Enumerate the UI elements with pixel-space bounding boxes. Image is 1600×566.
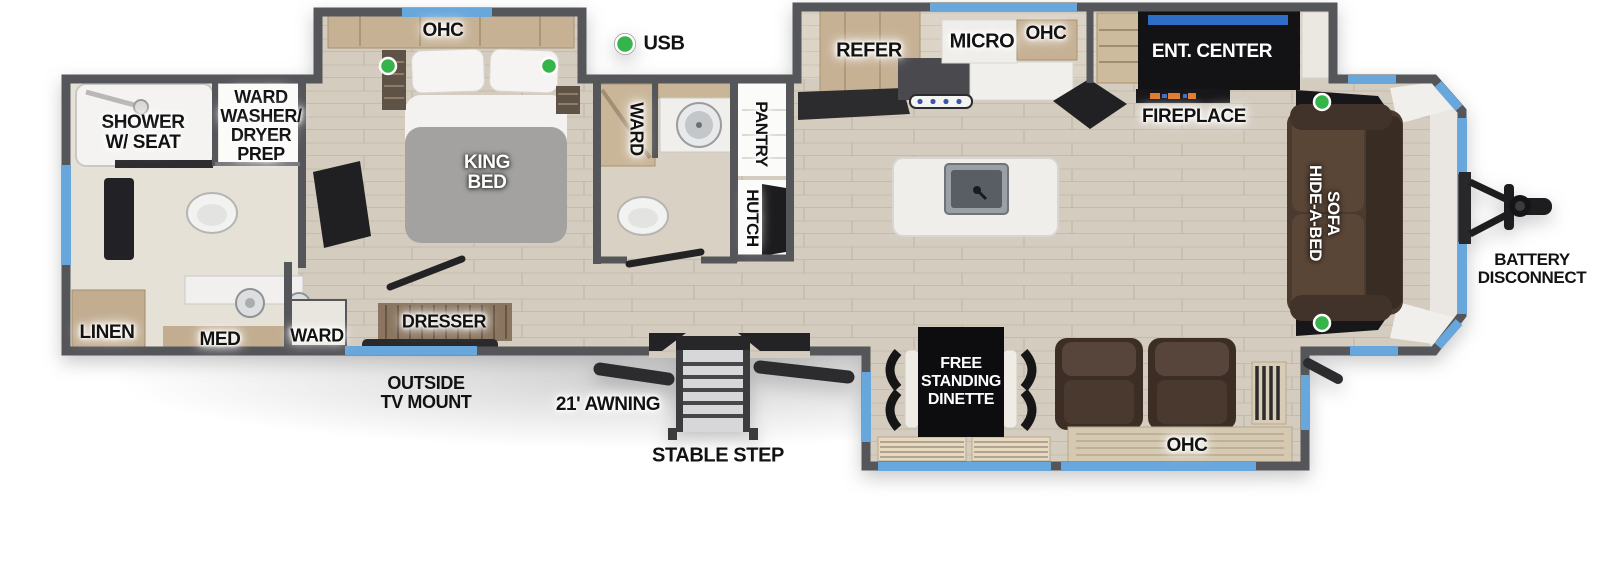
label-shower: SHOWER W/ SEAT	[101, 113, 184, 153]
step-landing	[676, 336, 750, 350]
label-ohc-kitchen: OHC	[1025, 24, 1066, 44]
label-refer: REFER	[836, 41, 902, 62]
label-hide-a-bed-sofa: HIDE-A-BED SOFA	[1306, 165, 1342, 261]
label-awning: 21' AWNING	[556, 395, 660, 415]
label-pantry: PANTRY	[752, 101, 770, 167]
bed-step-right	[556, 86, 580, 114]
vanity-sink-left-drain	[245, 298, 255, 308]
cap-cabinet	[1302, 12, 1332, 78]
awning-arm-right	[760, 367, 848, 377]
front-cap-floor	[1430, 79, 1462, 347]
theater-seat-right	[1148, 338, 1236, 430]
label-hutch: HUTCH	[743, 189, 761, 247]
hitch	[1459, 172, 1552, 244]
mid-toilet-seat	[628, 208, 658, 228]
range-counter	[898, 58, 972, 100]
label-med: MED	[199, 330, 240, 350]
label-ohc-theater: OHC	[1166, 436, 1207, 456]
front-bottom-window	[1350, 346, 1398, 355]
flame-2	[1168, 93, 1180, 99]
floorplan-drawing	[0, 0, 1600, 566]
flame-3	[1188, 93, 1196, 99]
step-rail-left	[676, 350, 683, 432]
pillow-left	[411, 49, 484, 93]
label-ward-washer-dryer: WARD WASHER/ DRYER PREP	[220, 88, 301, 164]
tv	[1148, 15, 1288, 25]
bedroom-bottom-window	[345, 346, 477, 355]
recliner-right-seat	[1157, 380, 1227, 424]
burner-2	[930, 99, 935, 104]
label-usb-legend: USB	[643, 34, 684, 55]
awning-arm-left	[600, 369, 668, 379]
dinette-side-window-right	[1301, 375, 1310, 430]
awning-arm-front	[1308, 363, 1338, 379]
hitch-plate	[1459, 172, 1471, 244]
rear-toilet-seat	[197, 204, 227, 226]
kitchen-island	[893, 158, 1058, 236]
recliner-left-back	[1062, 342, 1136, 376]
recliner-right-back	[1155, 342, 1229, 376]
kitchen-step-cabinet	[1097, 13, 1140, 83]
dinette-side-window-left	[862, 372, 871, 442]
label-battery-disconnect: BATTERY DISCONNECT	[1478, 251, 1586, 287]
burner-4	[956, 99, 961, 104]
usb-dot-bed-right	[541, 58, 557, 74]
cap-front-window-bottom	[1458, 242, 1467, 314]
shower-glass	[115, 160, 213, 168]
label-king-bed: KING BED	[464, 153, 510, 193]
entry-steps	[668, 336, 758, 440]
flame-blue-1	[1162, 94, 1167, 98]
kitchen-counter	[970, 62, 1073, 100]
label-fireplace: FIREPLACE	[1142, 107, 1246, 127]
sofa-backrest	[1366, 116, 1402, 309]
label-stable-step: STABLE STEP	[652, 446, 784, 467]
label-free-standing-dinette: FREE STANDING DINETTE	[918, 327, 1004, 437]
hitch-wheel-hub	[1515, 201, 1525, 211]
dinette-cushion-right	[1003, 350, 1017, 428]
usb-dot-sofa-top	[1314, 94, 1330, 110]
step-foot-left	[668, 428, 677, 440]
recliner-left-seat	[1064, 380, 1134, 424]
flame-blue-2	[1183, 94, 1187, 98]
bath-tv	[104, 178, 134, 260]
sofa-armrest-bottom	[1290, 295, 1392, 321]
flame-1	[1150, 93, 1160, 99]
step-rail-right	[743, 350, 750, 432]
label-outside-tv-mount: OUTSIDE TV MOUNT	[381, 374, 472, 412]
floorplan-page: OHC USB REFER MICRO OHC ENT. CENTER FIRE…	[0, 0, 1600, 566]
kitchen-slide-window	[930, 3, 1077, 12]
step-foot-right	[749, 428, 758, 440]
mid-sink-drain	[696, 122, 702, 128]
burner-1	[917, 99, 922, 104]
dinette-window-left	[878, 462, 1051, 471]
label-ward-bedroom: WARD	[290, 327, 343, 346]
label-ward-midbath: WARD	[627, 102, 646, 155]
label-ent-center: ENT. CENTER	[1152, 42, 1272, 62]
bed-slide-window	[402, 8, 492, 17]
rear-window	[62, 165, 71, 265]
usb-dot-sofa-bottom	[1314, 315, 1330, 331]
cap-front-window-top	[1458, 118, 1467, 174]
burner-3	[943, 99, 948, 104]
sofa-armrest-top	[1290, 104, 1392, 130]
dinette-window-right	[1061, 462, 1256, 471]
hutch-top	[762, 184, 786, 256]
label-linen: LINEN	[79, 323, 134, 343]
front-top-window	[1348, 75, 1396, 84]
label-dresser: DRESSER	[402, 313, 486, 332]
dinette-cushion-left	[905, 350, 919, 428]
theater-seat-left	[1055, 338, 1143, 430]
label-micro: MICRO	[950, 32, 1015, 53]
usb-dot-bed-left	[380, 58, 396, 74]
usb-legend-dot	[616, 35, 634, 53]
label-ohc-bedroom: OHC	[422, 21, 463, 41]
